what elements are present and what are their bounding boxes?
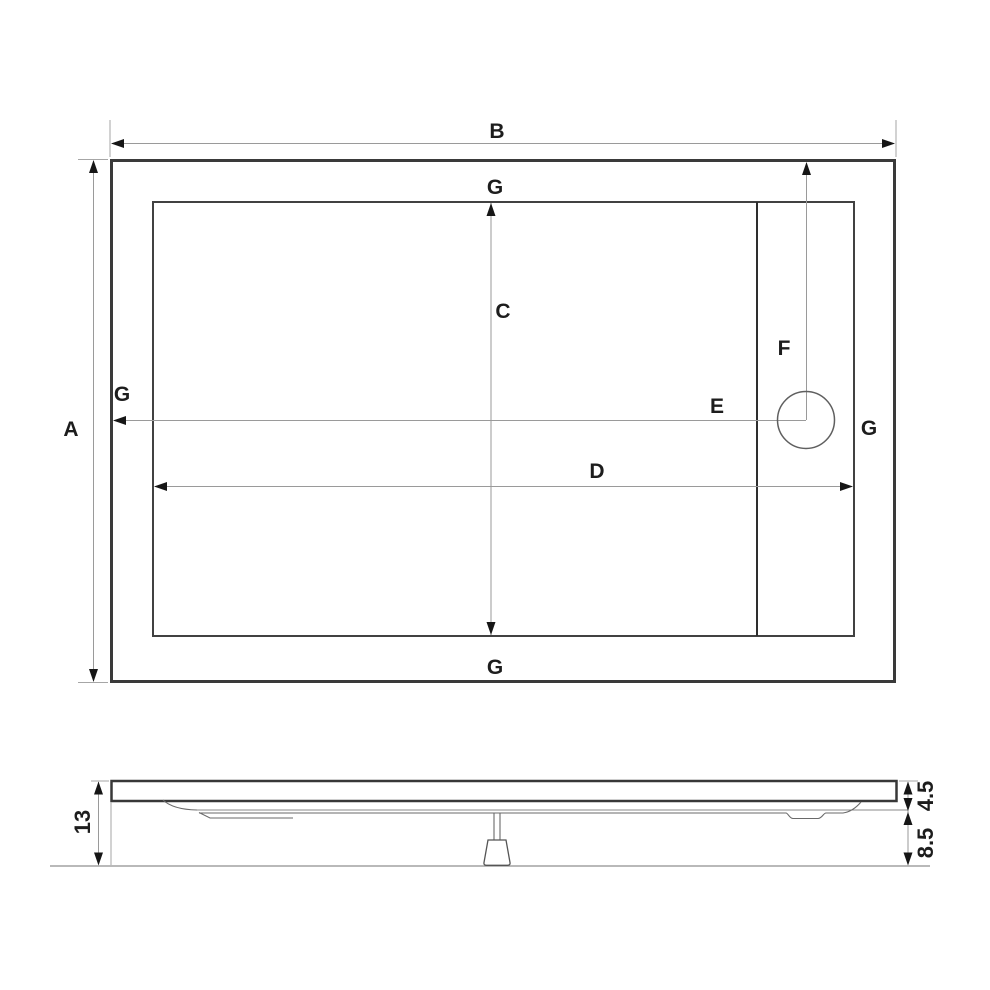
arrowhead-left (111, 139, 124, 148)
dim-b-overall-width: B (110, 120, 896, 157)
arrowhead-down (89, 669, 98, 682)
drawing-canvas: B A C G G (0, 0, 990, 990)
arrowhead-down (904, 798, 913, 811)
rim-label-g-bottom: G (487, 656, 503, 679)
arrowhead-left (154, 482, 167, 491)
arrowhead-up (487, 203, 496, 216)
arrowhead-down (904, 853, 913, 866)
rim-label-g-right: G (861, 417, 877, 440)
rim-label-g-left: G (114, 383, 130, 406)
arrowhead-up (904, 782, 913, 795)
dim-label-13: 13 (70, 810, 95, 834)
side-view: 13 4.5 8.5 (50, 781, 938, 866)
arrowhead-up (904, 812, 913, 825)
dim-label-f: F (778, 337, 791, 360)
arrowhead-right (840, 482, 853, 491)
dim-label-a: A (63, 418, 78, 441)
dim-f-drain-from-top: F G (778, 162, 878, 440)
dim-e-drain-from-left: E G (113, 383, 806, 425)
top-view: B A C G G (63, 120, 896, 683)
dim-label-d: D (589, 460, 604, 483)
dim-c-inner-height: C G G (487, 176, 511, 679)
foot-base (484, 840, 510, 865)
shower-tray-technical-drawing: B A C G G (0, 0, 990, 990)
dim-a-overall-height: A (63, 160, 108, 683)
dim-label-b: B (489, 120, 504, 143)
dim-13-total-height: 13 (70, 781, 111, 866)
arrowhead-left (113, 416, 126, 425)
dim-d-inner-width: D (154, 460, 853, 491)
arrowhead-right (882, 139, 895, 148)
arrowhead-up (802, 162, 811, 175)
dim-label-e: E (710, 395, 724, 418)
arrowhead-up (94, 782, 103, 795)
dim-right-heights: 4.5 8.5 (899, 781, 938, 866)
rim-label-g-top: G (487, 176, 503, 199)
dim-label-8-5: 8.5 (913, 828, 938, 859)
dim-label-4-5: 4.5 (913, 781, 938, 812)
tray-profile-rim (112, 781, 897, 801)
tray-foot (484, 813, 510, 865)
tray-inner-outline (153, 202, 854, 636)
arrowhead-down (94, 853, 103, 866)
dim-label-c: C (495, 300, 510, 323)
arrowhead-down (487, 622, 496, 635)
arrowhead-up (89, 160, 98, 173)
